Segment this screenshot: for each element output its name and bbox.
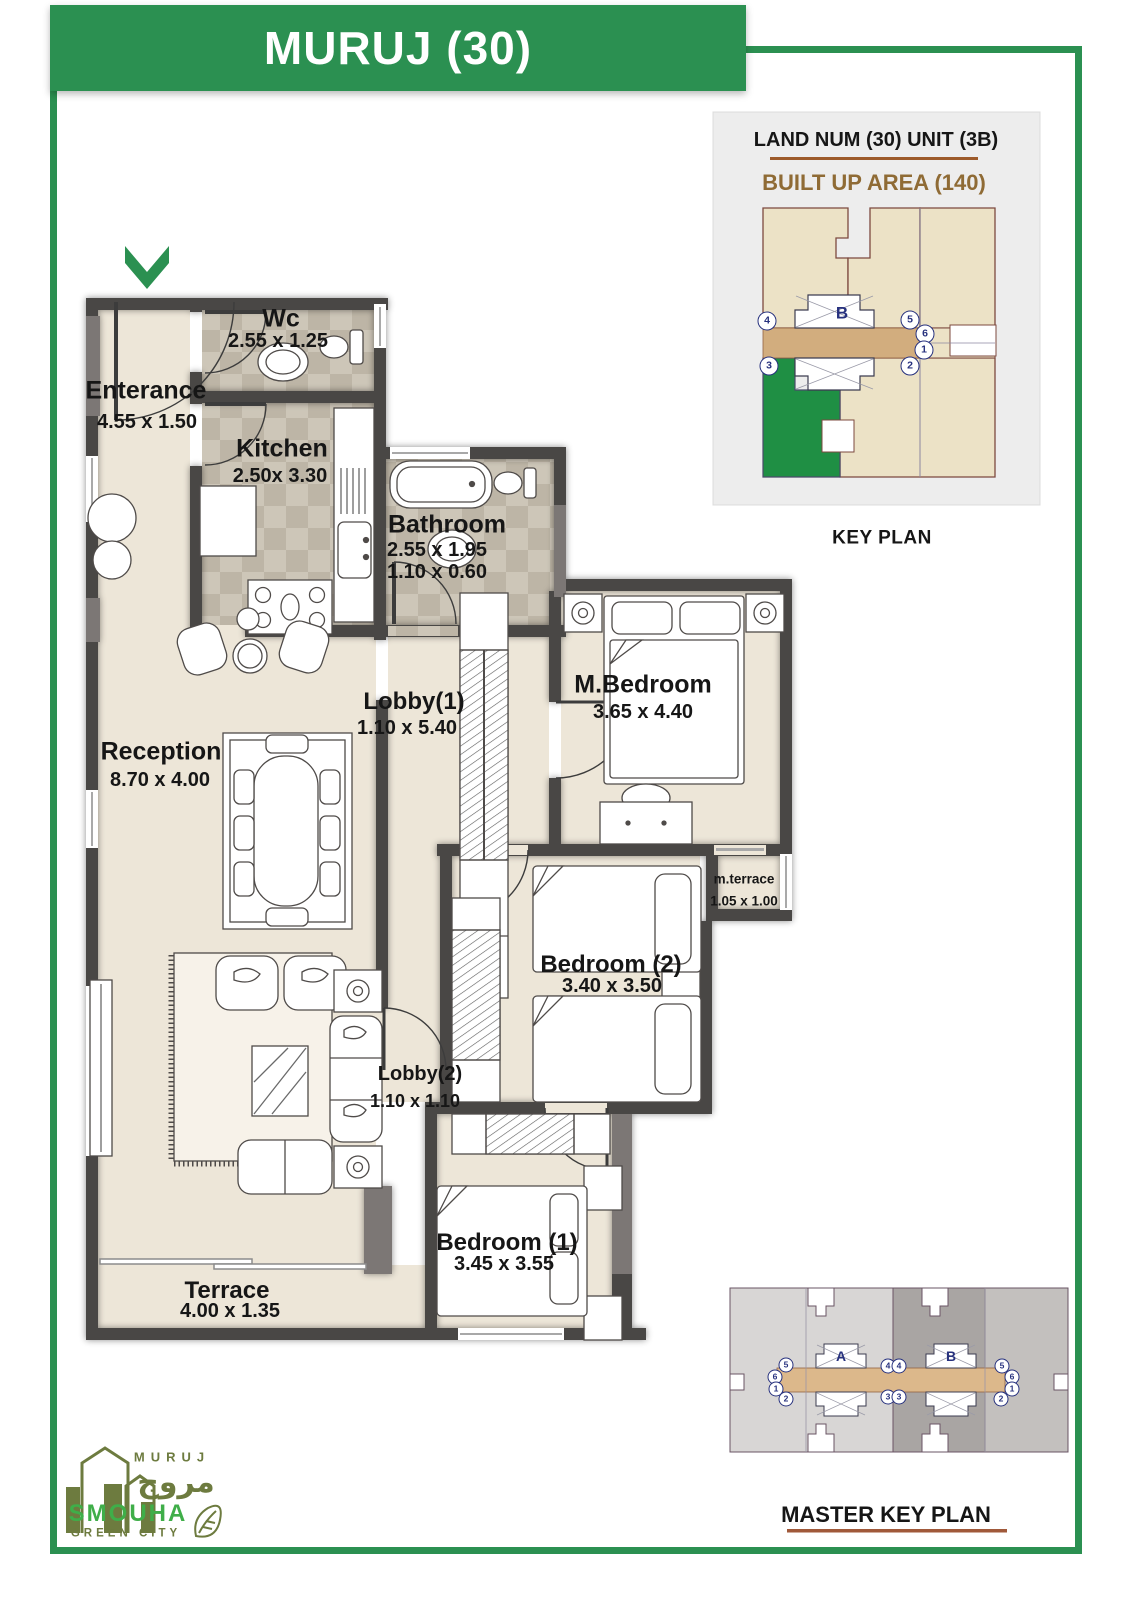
logo-tagline: GREEN CITY [71,1528,181,1540]
master-marker: 3 [892,1390,907,1405]
master-marker: 2 [994,1392,1009,1407]
room-dims-mbedroom: 3.65 x 4.40 [593,702,693,722]
room-label-wc: Wc [262,307,300,332]
room-label-bedroom1: Bedroom (1) [436,1231,577,1255]
logo-brand-arabic: مروج [137,1468,215,1498]
room-label-bathroom: Bathroom [388,513,506,538]
room-dims-mterrace: 1.05 x 1.00 [710,894,778,908]
page-title: MURUJ (30) [264,21,532,75]
room-dims-lobby1: 1.10 x 5.40 [357,718,457,738]
master-block-b-label: B [946,1349,956,1363]
master-marker: 2 [779,1392,794,1407]
room-label-mbedroom: M.Bedroom [574,673,712,698]
room-dims-entrance: 4.55 x 1.50 [97,412,197,432]
floor-plan-page: MURUJ (30) Wc 2.55 x 1.25 Enterance 4.55… [0,0,1131,1600]
master-marker: 4 [892,1359,907,1374]
master-marker: 5 [779,1358,794,1373]
room-dims-terrace: 4.00 x 1.35 [180,1301,280,1321]
key-plan-unit-letter: B [836,305,848,322]
room-label-kitchen: Kitchen [236,437,328,462]
logo-brand: MURUJ [134,1451,210,1464]
room-dims-wc: 2.55 x 1.25 [228,331,328,351]
room-dims-bedroom2: 3.40 x 3.50 [562,976,662,996]
key-plan-caption: KEY PLAN [832,529,932,548]
logo-name: SMOUHA [69,1502,188,1526]
key-plan-marker: 1 [915,341,934,360]
room-dims-lobby2: 1.10 x 1.10 [370,1092,460,1110]
master-key-plan-caption: MASTER KEY PLAN [781,1504,991,1526]
key-plan-marker: 4 [758,312,777,331]
key-plan-built-up-area: BUILT UP AREA (140) [762,172,986,194]
key-plan-marker: 3 [760,357,779,376]
key-plan-marker: 5 [901,311,920,330]
room-label-lobby1: Lobby(1) [363,690,464,714]
room-dims-kitchen: 2.50x 3.30 [233,466,328,486]
page-border [50,46,1082,1554]
room-dims-reception: 8.70 x 4.00 [110,770,210,790]
key-plan-land-num: LAND NUM (30) UNIT (3B) [754,130,998,150]
key-plan-marker: 2 [901,357,920,376]
room-label-entrance: Enterance [86,379,207,404]
title-banner: MURUJ (30) [50,5,746,91]
room-dims2-bathroom: 1.10 x 0.60 [387,562,487,582]
room-label-reception: Reception [101,740,222,765]
master-block-a-label: A [836,1349,846,1363]
room-label-lobby2: Lobby(2) [378,1064,462,1084]
room-dims-bedroom1: 3.45 x 3.55 [454,1254,554,1274]
room-label-bedroom2: Bedroom (2) [540,953,681,977]
room-label-mterrace: m.terrace [714,872,775,886]
room-dims-bathroom: 2.55 x 1.95 [387,540,487,560]
